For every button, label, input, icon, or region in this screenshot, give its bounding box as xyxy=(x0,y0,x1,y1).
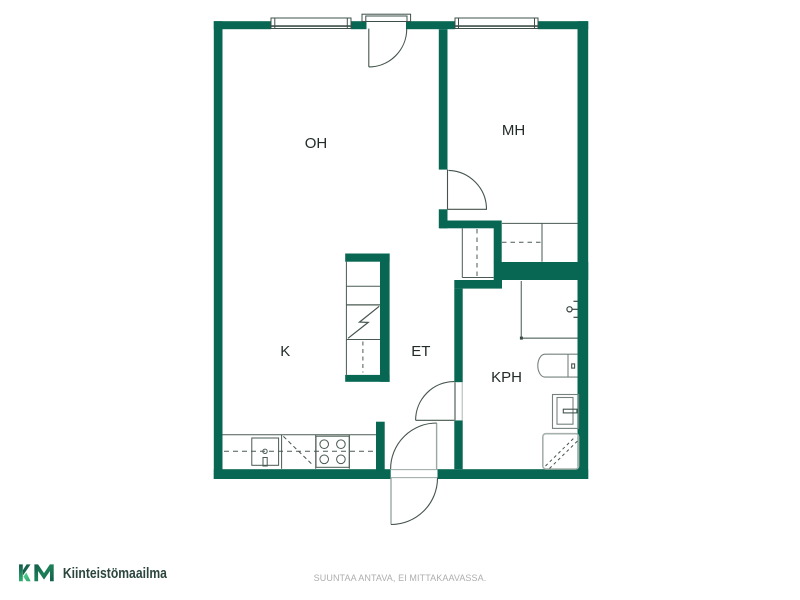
svg-text:KPH: KPH xyxy=(491,369,522,386)
svg-text:K: K xyxy=(280,343,290,360)
svg-text:ET: ET xyxy=(411,343,430,360)
svg-text:OH: OH xyxy=(305,135,328,152)
svg-text:Kiinteistömaailma: Kiinteistömaailma xyxy=(63,566,168,582)
svg-text:MH: MH xyxy=(502,122,525,139)
svg-text:SUUNTAA ANTAVA, EI MITTAKAAVAS: SUUNTAA ANTAVA, EI MITTAKAAVASSA. xyxy=(314,573,487,583)
